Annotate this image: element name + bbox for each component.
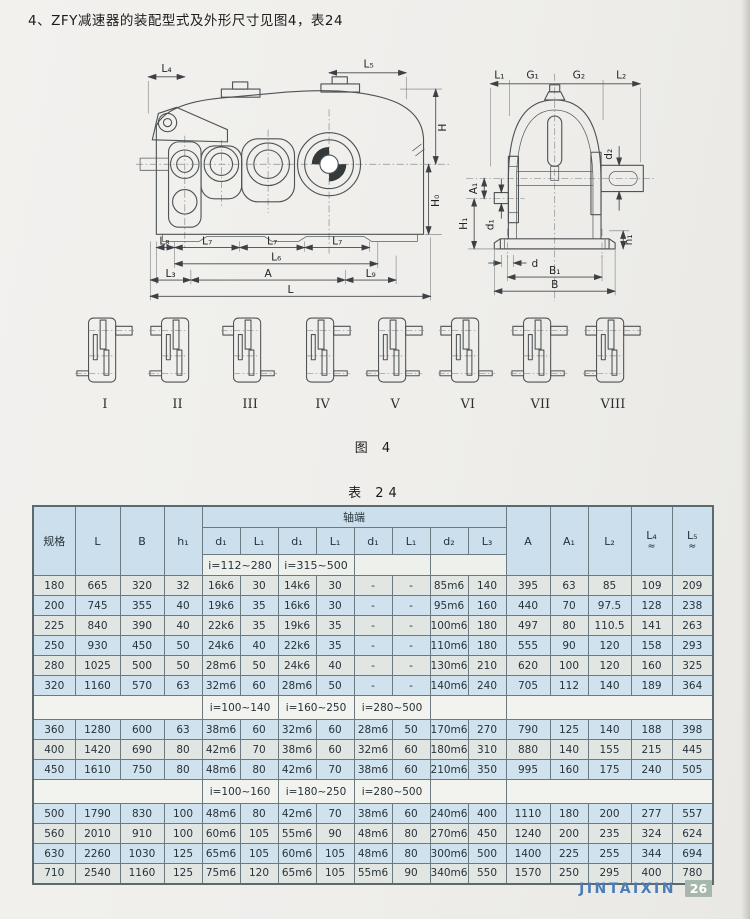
dim-label: L₈: [159, 234, 169, 247]
variant-numeral: VI: [437, 397, 499, 412]
value-cell: 210m6: [430, 760, 468, 780]
value-cell: 505: [672, 760, 713, 780]
dim-label: L₂: [616, 70, 626, 82]
value-cell: 624: [672, 824, 713, 844]
value-cell: 160: [468, 596, 506, 616]
col-header-spec: 规格: [33, 506, 75, 576]
value-cell: 263: [672, 616, 713, 636]
variant-numeral: II: [147, 397, 209, 412]
value-cell: 395: [506, 576, 550, 596]
table-row: 40014206908042m67038m66032m660180m631088…: [33, 740, 713, 760]
value-cell: 85: [588, 576, 631, 596]
value-cell: 400: [468, 804, 506, 824]
value-cell: 705: [506, 676, 550, 696]
value-cell: 120: [588, 656, 631, 676]
value-cell: 125: [550, 720, 588, 740]
value-cell: -: [392, 616, 430, 636]
value-cell: 270: [468, 720, 506, 740]
dim-label: L₉: [366, 267, 376, 280]
value-cell: 1110: [506, 804, 550, 824]
value-cell: 270m6: [430, 824, 468, 844]
col-header-L1: L₁: [240, 528, 278, 555]
value-cell: 80: [392, 824, 430, 844]
value-cell: 310: [468, 740, 506, 760]
value-cell: 42m6: [202, 740, 240, 760]
col-header-L4: L₄ ≈: [631, 506, 672, 576]
page-number-badge: 26: [685, 880, 712, 897]
figure-caption: 图 4: [15, 437, 735, 456]
col-header-h1: h₁: [164, 506, 202, 576]
side-view-drawing: L₄ L₅ H H₀ L₈ L₇ L₇ L₇ L₆ L₃ A: [134, 52, 454, 312]
dim-label: A₁: [468, 183, 480, 194]
assembly-variant: VII: [509, 312, 571, 412]
spec-cell: 500: [33, 804, 75, 824]
dim-label: L₆: [271, 251, 281, 264]
value-cell: 690: [120, 740, 164, 760]
value-cell: 35: [316, 616, 354, 636]
value-cell: 65m6: [202, 844, 240, 864]
dim-label: d₂: [603, 149, 615, 160]
table-caption: 表 24: [15, 482, 735, 501]
value-cell: 60: [392, 740, 430, 760]
value-cell: 80: [240, 760, 278, 780]
ratio-band-row: i=100~160i=180~250i=280~500: [33, 780, 713, 804]
value-cell: 694: [672, 844, 713, 864]
value-cell: 209: [672, 576, 713, 596]
col-header-L1: L₁: [316, 528, 354, 555]
value-cell: 80: [550, 616, 588, 636]
value-cell: 80: [240, 804, 278, 824]
value-cell: 158: [631, 636, 672, 656]
value-cell: 155: [588, 740, 631, 760]
table-row: 560201091010060m610555m69048m680270m6450…: [33, 824, 713, 844]
assembly-diagram-icon: [74, 312, 136, 392]
value-cell: 180: [468, 616, 506, 636]
value-cell: 240: [631, 760, 672, 780]
value-cell: 188: [631, 720, 672, 740]
value-cell: 398: [672, 720, 713, 740]
assembly-variant: I: [74, 312, 136, 412]
dim-label: G₁: [526, 70, 538, 82]
dim-label: B: [551, 279, 558, 291]
value-cell: 90: [550, 636, 588, 656]
value-cell: 2010: [75, 824, 120, 844]
value-cell: 85m6: [430, 576, 468, 596]
spec-cell: 320: [33, 676, 75, 696]
dim-label: H: [436, 124, 449, 132]
value-cell: 830: [120, 804, 164, 824]
value-cell: 500: [120, 656, 164, 676]
assembly-variant: VIII: [582, 312, 644, 412]
col-header-d1: d₁: [278, 528, 316, 555]
assembly-variants: IIIIIIIVVVIVIIVIII: [74, 312, 644, 412]
value-cell: 28m6: [278, 676, 316, 696]
value-cell: 189: [631, 676, 672, 696]
spec-cell: 225: [33, 616, 75, 636]
value-cell: 19k6: [278, 616, 316, 636]
value-cell: 50: [164, 636, 202, 656]
value-cell: 450: [468, 824, 506, 844]
value-cell: 70: [316, 804, 354, 824]
value-cell: 32m6: [354, 740, 392, 760]
assembly-variant: V: [364, 312, 426, 412]
value-cell: 80: [164, 760, 202, 780]
value-cell: 70: [240, 740, 278, 760]
value-cell: 1400: [506, 844, 550, 864]
value-cell: 28m6: [202, 656, 240, 676]
approx-sign: ≈: [632, 542, 672, 552]
value-cell: 500: [468, 844, 506, 864]
value-cell: 1790: [75, 804, 120, 824]
table-row: 2509304505024k64022k635--110m61805559012…: [33, 636, 713, 656]
value-cell: 60: [392, 760, 430, 780]
value-cell: -: [354, 636, 392, 656]
value-cell: 14k6: [278, 576, 316, 596]
col-group-shaft-end: 轴端: [202, 506, 506, 528]
value-cell: 140: [468, 576, 506, 596]
value-cell: 200: [588, 804, 631, 824]
variant-numeral: I: [74, 397, 136, 412]
value-cell: 38m6: [278, 740, 316, 760]
value-cell: 24k6: [278, 656, 316, 676]
table-body: 1806653203216k63014k630--85m614039563851…: [33, 576, 713, 884]
value-cell: 140: [550, 740, 588, 760]
dim-label: L₃: [165, 267, 175, 280]
value-cell: 450: [120, 636, 164, 656]
dim-label: L: [287, 283, 293, 296]
value-cell: 277: [631, 804, 672, 824]
value-cell: 40: [164, 596, 202, 616]
band-spacer: [430, 780, 506, 804]
value-cell: 105: [240, 824, 278, 844]
value-cell: 90: [316, 824, 354, 844]
value-cell: 100: [550, 656, 588, 676]
col-header-L2: L₂: [588, 506, 631, 576]
value-cell: 48m6: [202, 760, 240, 780]
dim-label: L₁: [494, 70, 504, 82]
value-cell: 60: [316, 740, 354, 760]
value-cell: 60: [392, 804, 430, 824]
assembly-variant: VI: [437, 312, 499, 412]
value-cell: 140: [588, 720, 631, 740]
value-cell: 32: [164, 576, 202, 596]
value-cell: -: [392, 676, 430, 696]
dim-label: B₁: [549, 265, 560, 277]
value-cell: 160: [631, 656, 672, 676]
assembly-variant: III: [219, 312, 281, 412]
value-cell: 105: [316, 844, 354, 864]
assembly-diagram-icon: [582, 312, 644, 392]
spec-cell: 200: [33, 596, 75, 616]
value-cell: 840: [75, 616, 120, 636]
value-cell: 42m6: [278, 804, 316, 824]
dim-label: L₄: [161, 62, 171, 75]
dim-label: G₂: [573, 70, 585, 82]
value-cell: 110m6: [430, 636, 468, 656]
value-cell: 325: [672, 656, 713, 676]
end-view-drawing: L₁ G₁ G₂ L₂ d₂ A₁ H₁ d₁ h₁: [452, 68, 744, 308]
value-cell: 50: [240, 656, 278, 676]
value-cell: 60: [240, 676, 278, 696]
value-cell: 1240: [506, 824, 550, 844]
table-row: 500179083010048m68042m67038m660240m64001…: [33, 804, 713, 824]
band-spacer: [506, 780, 713, 804]
value-cell: 80: [164, 740, 202, 760]
value-cell: 95m6: [430, 596, 468, 616]
col-header-L3: L₃: [468, 528, 506, 555]
value-cell: 30: [316, 596, 354, 616]
value-cell: -: [354, 596, 392, 616]
value-cell: 555: [506, 636, 550, 656]
value-cell: 63: [550, 576, 588, 596]
value-cell: 30: [240, 576, 278, 596]
value-cell: 1420: [75, 740, 120, 760]
value-cell: 255: [588, 844, 631, 864]
value-cell: 70: [316, 760, 354, 780]
col-header-L5: L₅ ≈: [672, 506, 713, 576]
value-cell: 238: [672, 596, 713, 616]
variant-numeral: VIII: [582, 397, 644, 412]
value-cell: 364: [672, 676, 713, 696]
spec-cell: 250: [33, 636, 75, 656]
value-cell: 110.5: [588, 616, 631, 636]
value-cell: 63: [164, 676, 202, 696]
dim-label: L₇: [202, 234, 212, 247]
value-cell: 497: [506, 616, 550, 636]
value-cell: 600: [120, 720, 164, 740]
assembly-variant: II: [147, 312, 209, 412]
value-cell: -: [354, 676, 392, 696]
value-cell: 35: [240, 616, 278, 636]
value-cell: -: [392, 596, 430, 616]
value-cell: 16k6: [202, 576, 240, 596]
value-cell: 355: [120, 596, 164, 616]
value-cell: 180: [468, 636, 506, 656]
value-cell: 30: [316, 576, 354, 596]
value-cell: 140: [588, 676, 631, 696]
value-cell: 50: [316, 676, 354, 696]
value-cell: 240: [468, 676, 506, 696]
ratio-range-header: i=315~500: [278, 555, 354, 576]
value-cell: 50: [164, 656, 202, 676]
dim-label: L₅: [364, 58, 374, 71]
value-cell: 344: [631, 844, 672, 864]
value-cell: 300m6: [430, 844, 468, 864]
col-header-d2: d₂: [430, 528, 468, 555]
band-spacer: [506, 696, 713, 720]
spec-cell: 630: [33, 844, 75, 864]
assembly-diagram-icon: [292, 312, 354, 392]
page-footer: JINTAIXIN 26: [32, 880, 712, 897]
value-cell: 350: [468, 760, 506, 780]
approx-sign: ≈: [673, 542, 713, 552]
value-cell: 750: [120, 760, 164, 780]
value-cell: 390: [120, 616, 164, 636]
value-cell: 293: [672, 636, 713, 656]
brand-logo-text: JINTAIXIN: [579, 881, 676, 897]
value-cell: 35: [316, 636, 354, 656]
value-cell: -: [354, 656, 392, 676]
value-cell: 24k6: [202, 636, 240, 656]
scanned-catalog-page: 4、ZFY减速器的装配型式及外形尺寸见图4，表24: [0, 0, 750, 919]
page-title: 4、ZFY减速器的装配型式及外形尺寸见图4，表24: [28, 9, 343, 29]
spec-cell: 180: [33, 576, 75, 596]
assembly-variant: IV: [292, 312, 354, 412]
value-cell: 570: [120, 676, 164, 696]
value-cell: 32m6: [278, 720, 316, 740]
value-cell: 38m6: [202, 720, 240, 740]
value-cell: 440: [506, 596, 550, 616]
value-cell: 70: [550, 596, 588, 616]
value-cell: 745: [75, 596, 120, 616]
value-cell: 1610: [75, 760, 120, 780]
value-cell: 48m6: [354, 844, 392, 864]
value-cell: 109: [631, 576, 672, 596]
value-cell: 120: [588, 636, 631, 656]
value-cell: 930: [75, 636, 120, 656]
variant-numeral: IV: [292, 397, 354, 412]
table-row: 2007453554019k63516k630--95m61604407097.…: [33, 596, 713, 616]
value-cell: 160: [550, 760, 588, 780]
assembly-diagram-icon: [509, 312, 571, 392]
value-cell: 35: [240, 596, 278, 616]
dim-label: L₇: [332, 234, 342, 247]
value-cell: 48m6: [354, 824, 392, 844]
band-spacer: [33, 780, 202, 804]
value-cell: 32m6: [202, 676, 240, 696]
value-cell: 445: [672, 740, 713, 760]
value-cell: 112: [550, 676, 588, 696]
value-cell: 235: [588, 824, 631, 844]
value-cell: 790: [506, 720, 550, 740]
value-cell: 40: [164, 616, 202, 636]
value-cell: 22k6: [202, 616, 240, 636]
value-cell: 140m6: [430, 676, 468, 696]
value-cell: 50: [392, 720, 430, 740]
value-cell: 38m6: [354, 804, 392, 824]
col-header-L: L: [75, 506, 120, 576]
value-cell: -: [392, 576, 430, 596]
value-cell: 38m6: [354, 760, 392, 780]
table-row: 32011605706332m66028m650--140m6240705112…: [33, 676, 713, 696]
value-cell: 320: [120, 576, 164, 596]
assembly-diagram-icon: [219, 312, 281, 392]
value-cell: 200: [550, 824, 588, 844]
col-header-L1: L₁: [392, 528, 430, 555]
table-row: 36012806006338m66032m66028m650170m627079…: [33, 720, 713, 740]
value-cell: -: [392, 656, 430, 676]
value-cell: 60: [316, 720, 354, 740]
dim-label: h₁: [623, 234, 635, 245]
ratio-range: i=160~250: [278, 696, 354, 720]
ratio-range-header: i=112~280: [202, 555, 278, 576]
spec-cell: 560: [33, 824, 75, 844]
value-cell: 620: [506, 656, 550, 676]
dim-label: L₇: [267, 234, 277, 247]
dim-label: d: [532, 258, 539, 270]
value-cell: 2260: [75, 844, 120, 864]
value-cell: 100m6: [430, 616, 468, 636]
value-cell: 60m6: [202, 824, 240, 844]
value-cell: 175: [588, 760, 631, 780]
spec-cell: 400: [33, 740, 75, 760]
value-cell: 557: [672, 804, 713, 824]
col-header-A1: A₁: [550, 506, 588, 576]
value-cell: 995: [506, 760, 550, 780]
col-header-d1: d₁: [354, 528, 392, 555]
value-cell: 42m6: [278, 760, 316, 780]
ratio-range-spacer: [430, 555, 506, 576]
value-cell: 60: [240, 720, 278, 740]
value-cell: 665: [75, 576, 120, 596]
value-cell: 60m6: [278, 844, 316, 864]
spec-cell: 280: [33, 656, 75, 676]
value-cell: 48m6: [202, 804, 240, 824]
value-cell: 1280: [75, 720, 120, 740]
value-cell: 128: [631, 596, 672, 616]
table-row: 28010255005028m65024k640--130m6210620100…: [33, 656, 713, 676]
table-row: 2258403904022k63519k635--100m61804978011…: [33, 616, 713, 636]
dim-label: H₁: [458, 218, 470, 230]
value-cell: 105: [240, 844, 278, 864]
value-cell: 28m6: [354, 720, 392, 740]
col-header-A: A: [506, 506, 550, 576]
table-row: 6302260103012565m610560m610548m680300m65…: [33, 844, 713, 864]
dim-label: H₀: [429, 195, 442, 207]
value-cell: 1160: [75, 676, 120, 696]
ratio-range: i=180~250: [278, 780, 354, 804]
value-cell: 180: [550, 804, 588, 824]
value-cell: 910: [120, 824, 164, 844]
ratio-range: i=100~160: [202, 780, 278, 804]
value-cell: 80: [392, 844, 430, 864]
value-cell: 1030: [120, 844, 164, 864]
value-cell: 16k6: [278, 596, 316, 616]
spec-cell: 360: [33, 720, 75, 740]
value-cell: 63: [164, 720, 202, 740]
value-cell: 100: [164, 804, 202, 824]
col-header-d1: d₁: [202, 528, 240, 555]
value-cell: 40: [316, 656, 354, 676]
ratio-band-row: i=100~140i=160~250i=280~500: [33, 696, 713, 720]
value-cell: 22k6: [278, 636, 316, 656]
value-cell: 240m6: [430, 804, 468, 824]
col-header-B: B: [120, 506, 164, 576]
value-cell: -: [392, 636, 430, 656]
value-cell: 1025: [75, 656, 120, 676]
assembly-diagram-icon: [147, 312, 209, 392]
assembly-diagram-icon: [364, 312, 426, 392]
value-cell: -: [354, 576, 392, 596]
value-cell: 125: [164, 844, 202, 864]
value-cell: 180m6: [430, 740, 468, 760]
ratio-range: i=280~500: [354, 780, 430, 804]
assembly-diagram-icon: [437, 312, 499, 392]
band-spacer: [33, 696, 202, 720]
value-cell: 210: [468, 656, 506, 676]
value-cell: 55m6: [278, 824, 316, 844]
value-cell: 215: [631, 740, 672, 760]
table-row: 1806653203216k63014k630--85m614039563851…: [33, 576, 713, 596]
value-cell: 40: [240, 636, 278, 656]
value-cell: 225: [550, 844, 588, 864]
dim-label: d₁: [484, 219, 496, 230]
table-row: 45016107508048m68042m67038m660210m635099…: [33, 760, 713, 780]
value-cell: 324: [631, 824, 672, 844]
value-cell: 170m6: [430, 720, 468, 740]
spec-cell: 450: [33, 760, 75, 780]
value-cell: 130m6: [430, 656, 468, 676]
